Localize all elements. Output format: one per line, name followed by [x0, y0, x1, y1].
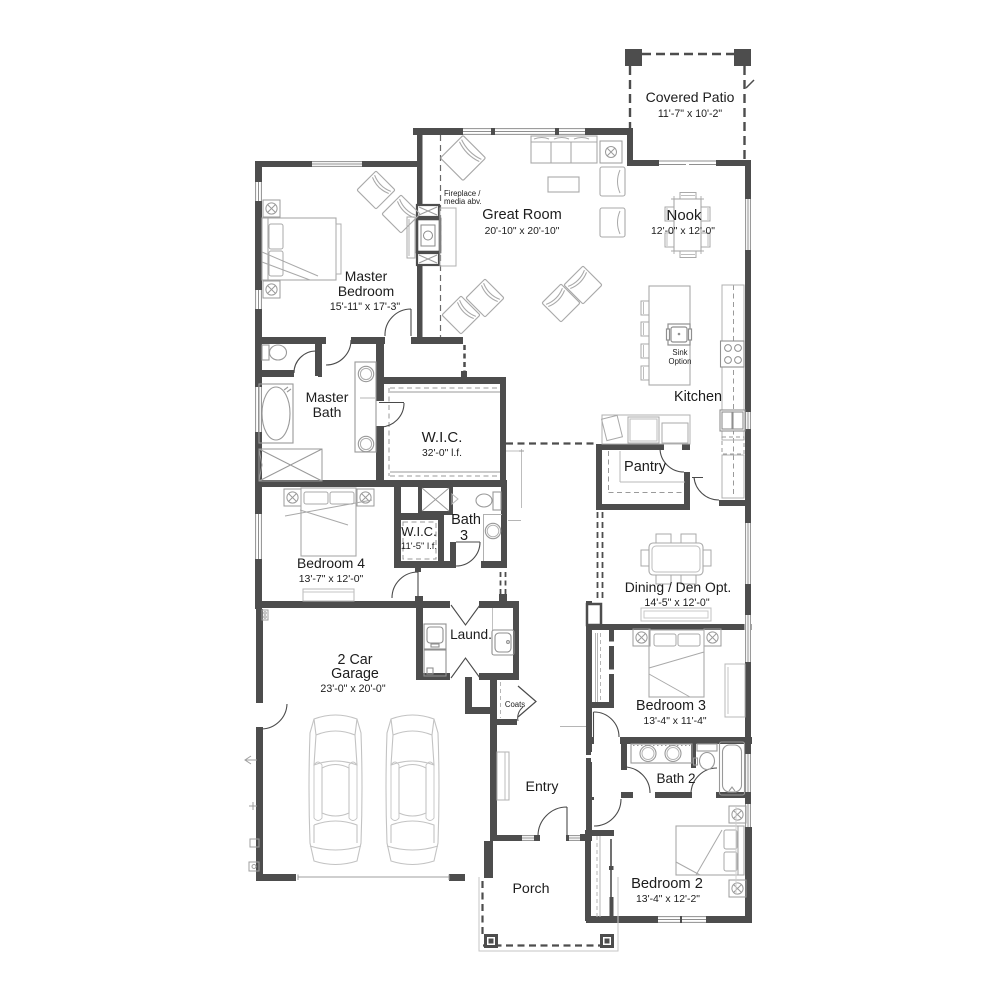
svg-text:Master: Master	[306, 389, 349, 405]
svg-text:W.I.C.: W.I.C.	[422, 429, 463, 446]
svg-text:Sink: Sink	[672, 348, 687, 357]
svg-text:media abv.: media abv.	[444, 197, 482, 206]
svg-text:Great Room: Great Room	[482, 207, 561, 223]
svg-text:11'-7" x 10'-2": 11'-7" x 10'-2"	[658, 108, 723, 120]
svg-text:Bedroom: Bedroom	[338, 283, 394, 299]
svg-text:Bath: Bath	[313, 404, 342, 420]
svg-text:Bedroom 3: Bedroom 3	[636, 698, 706, 714]
svg-text:Bath: Bath	[451, 512, 481, 528]
svg-text:Bedroom 2: Bedroom 2	[631, 876, 703, 892]
svg-text:23'-0" x 20'-0": 23'-0" x 20'-0"	[320, 683, 385, 695]
svg-text:Coats: Coats	[505, 700, 525, 709]
svg-text:Pantry: Pantry	[624, 459, 667, 475]
svg-text:11'-5" l.f.: 11'-5" l.f.	[401, 541, 437, 552]
svg-text:Entry: Entry	[526, 778, 560, 794]
svg-text:Porch: Porch	[512, 881, 549, 897]
svg-text:Master: Master	[345, 268, 388, 284]
svg-text:13'-7" x 12'-0": 13'-7" x 12'-0"	[299, 573, 364, 585]
svg-text:Bedroom 4: Bedroom 4	[297, 555, 365, 571]
svg-text:Kitchen: Kitchen	[674, 389, 722, 405]
svg-text:Garage: Garage	[331, 666, 379, 682]
svg-text:13'-4" x 12'-2": 13'-4" x 12'-2"	[636, 894, 700, 905]
svg-text:Laund.: Laund.	[450, 627, 492, 642]
svg-text:W.I.C.: W.I.C.	[401, 524, 436, 539]
svg-text:Nook: Nook	[666, 207, 702, 224]
svg-text:14'-5" x 12'-0": 14'-5" x 12'-0"	[644, 597, 709, 609]
svg-text:Option: Option	[669, 357, 692, 366]
svg-text:32'-0" l.f.: 32'-0" l.f.	[422, 448, 462, 459]
svg-text:20'-10" x 20'-10": 20'-10" x 20'-10"	[485, 226, 560, 237]
svg-text:15'-11" x 17'-3": 15'-11" x 17'-3"	[330, 301, 401, 313]
svg-text:Dining / Den Opt.: Dining / Den Opt.	[625, 579, 732, 595]
svg-text:3: 3	[460, 528, 468, 544]
svg-text:12'-0" x 12'-0": 12'-0" x 12'-0"	[651, 226, 715, 237]
svg-text:13'-4" x 11'-4": 13'-4" x 11'-4"	[643, 716, 706, 727]
svg-text:Bath 2: Bath 2	[656, 771, 695, 786]
svg-text:Covered Patio: Covered Patio	[646, 89, 735, 105]
